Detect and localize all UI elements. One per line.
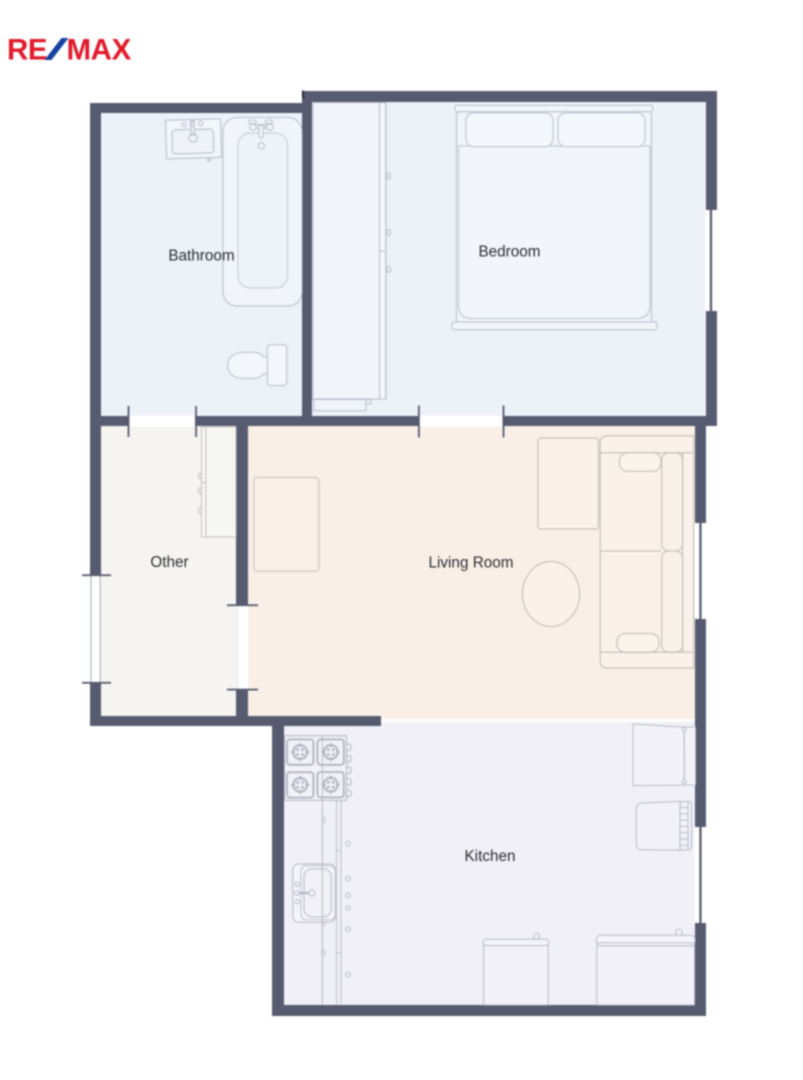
svg-text:Other: Other: [150, 554, 188, 571]
svg-text:Bedroom: Bedroom: [478, 243, 540, 260]
svg-text:Kitchen: Kitchen: [464, 848, 515, 865]
svg-text:Bathroom: Bathroom: [168, 248, 234, 265]
svg-text:RE: RE: [7, 34, 47, 67]
svg-text:Living Room: Living Room: [428, 555, 513, 572]
svg-text:MAX: MAX: [67, 34, 132, 67]
